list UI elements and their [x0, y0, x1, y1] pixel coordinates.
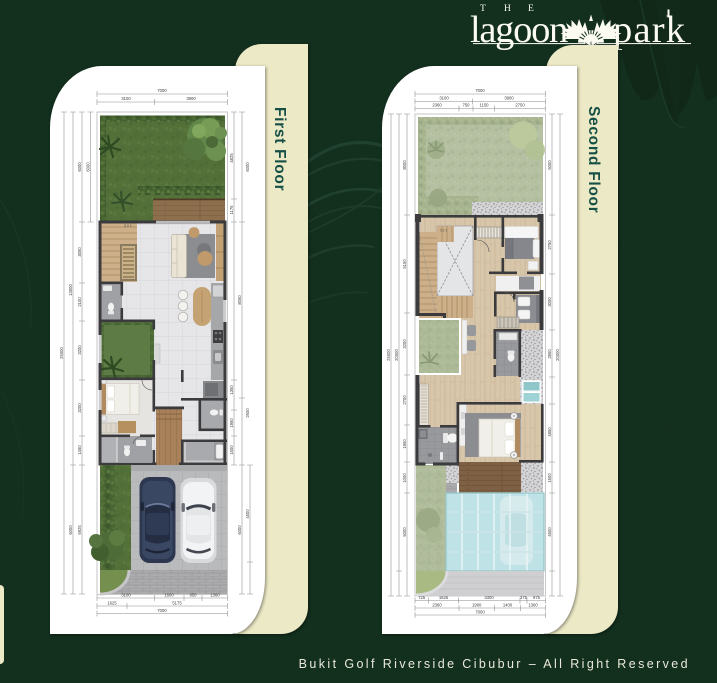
svg-text:13000: 13000	[68, 284, 73, 296]
svg-text:6000: 6000	[237, 525, 242, 535]
svg-text:4600: 4600	[547, 527, 552, 537]
svg-text:3900: 3900	[504, 96, 514, 101]
svg-text:3 2 1: 3 2 1	[440, 229, 447, 233]
svg-text:6000: 6000	[77, 162, 82, 172]
svg-text:6000: 6000	[547, 160, 552, 170]
svg-text:6000: 6000	[245, 162, 250, 172]
svg-text:6000: 6000	[86, 162, 91, 172]
svg-text:20000: 20000	[394, 349, 399, 361]
svg-text:park: park	[613, 9, 686, 51]
svg-text:2360: 2360	[432, 103, 442, 108]
svg-text:3 2 1: 3 2 1	[124, 224, 132, 228]
svg-text:2850: 2850	[547, 349, 552, 359]
svg-text:1360: 1360	[528, 603, 538, 608]
svg-text:2750: 2750	[547, 240, 552, 250]
svg-text:725: 725	[418, 595, 426, 600]
svg-text:4850: 4850	[547, 427, 552, 437]
svg-text:5175: 5175	[172, 601, 182, 606]
svg-text:7000: 7000	[475, 88, 485, 93]
svg-text:1175: 1175	[229, 205, 234, 215]
svg-text:1150: 1150	[479, 103, 489, 108]
svg-text:3050: 3050	[77, 247, 82, 257]
svg-text:1950: 1950	[402, 439, 407, 449]
svg-text:5925: 5925	[77, 525, 82, 535]
svg-text:3900: 3900	[186, 96, 196, 101]
svg-text:8000: 8000	[402, 160, 407, 170]
svg-text:2750: 2750	[515, 103, 525, 108]
svg-text:2360: 2360	[432, 603, 442, 608]
svg-text:1500: 1500	[547, 473, 552, 483]
svg-text:1625: 1625	[107, 601, 117, 606]
svg-text:375: 375	[520, 595, 528, 600]
svg-text:1000: 1000	[402, 473, 407, 483]
svg-text:20000: 20000	[555, 349, 560, 361]
svg-text:2100: 2100	[77, 297, 82, 307]
svg-text:25000: 25000	[386, 349, 391, 361]
svg-text:1360: 1360	[210, 593, 220, 598]
svg-text:3200: 3200	[77, 345, 82, 355]
svg-text:975: 975	[533, 595, 541, 600]
svg-text:1900: 1900	[472, 603, 482, 608]
svg-text:5150: 5150	[402, 259, 407, 269]
svg-text:1625: 1625	[439, 595, 449, 600]
svg-text:6000: 6000	[68, 525, 73, 535]
svg-text:7000: 7000	[157, 608, 167, 613]
svg-text:950: 950	[190, 593, 198, 598]
svg-text:1400: 1400	[503, 603, 513, 608]
svg-text:2700: 2700	[402, 395, 407, 405]
svg-text:3200: 3200	[402, 339, 407, 349]
svg-text:3200: 3200	[77, 403, 82, 413]
svg-text:2600: 2600	[245, 408, 250, 418]
svg-text:1950: 1950	[229, 418, 234, 428]
svg-text:7000: 7000	[157, 88, 167, 93]
svg-text:4825: 4825	[229, 153, 234, 163]
svg-text:3100: 3100	[121, 96, 131, 101]
svg-text:1600: 1600	[164, 593, 174, 598]
svg-text:8050: 8050	[237, 295, 242, 305]
svg-text:25000: 25000	[59, 347, 64, 359]
svg-text:1450: 1450	[77, 445, 82, 455]
svg-text:1500: 1500	[229, 445, 234, 455]
svg-text:3300: 3300	[484, 595, 494, 600]
svg-text:3100: 3100	[439, 96, 449, 101]
svg-text:3100: 3100	[121, 593, 131, 598]
svg-text:5000: 5000	[402, 527, 407, 537]
svg-text:3000: 3000	[547, 297, 552, 307]
svg-text:750: 750	[463, 103, 471, 108]
svg-text:1350: 1350	[229, 385, 234, 395]
svg-text:4500: 4500	[245, 509, 250, 519]
svg-text:7000: 7000	[475, 610, 485, 615]
